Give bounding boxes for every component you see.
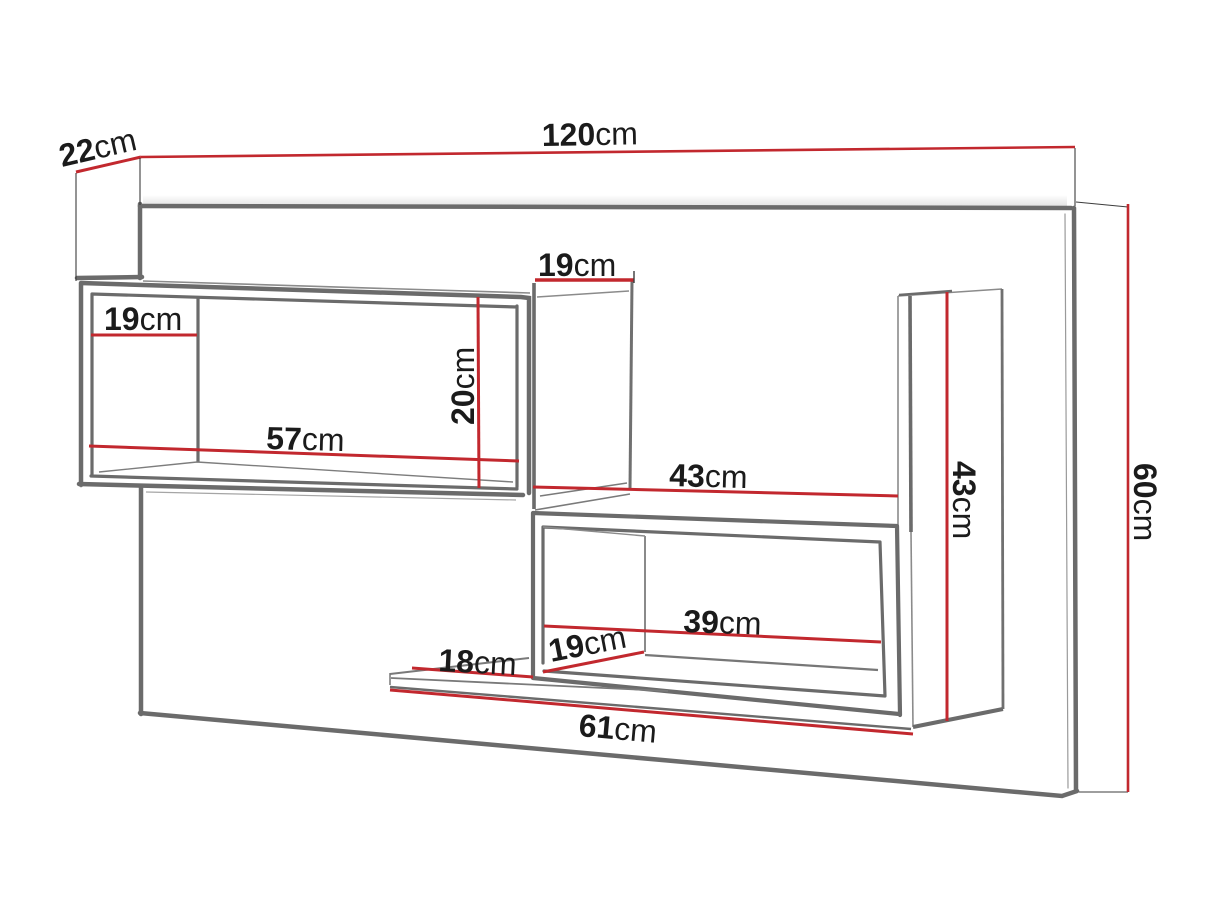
- svg-text:20cm: 20cm: [445, 347, 481, 425]
- svg-text:22cm: 22cm: [55, 121, 139, 174]
- svg-text:61cm: 61cm: [577, 707, 658, 750]
- svg-text:19cm: 19cm: [538, 247, 616, 283]
- svg-text:19cm: 19cm: [104, 301, 182, 337]
- svg-text:60cm: 60cm: [1127, 463, 1163, 541]
- svg-text:18cm: 18cm: [438, 642, 518, 682]
- svg-text:43cm: 43cm: [946, 461, 982, 539]
- svg-text:39cm: 39cm: [683, 603, 762, 642]
- svg-text:120cm: 120cm: [541, 115, 638, 153]
- svg-text:57cm: 57cm: [266, 420, 345, 458]
- svg-text:43cm: 43cm: [669, 457, 748, 495]
